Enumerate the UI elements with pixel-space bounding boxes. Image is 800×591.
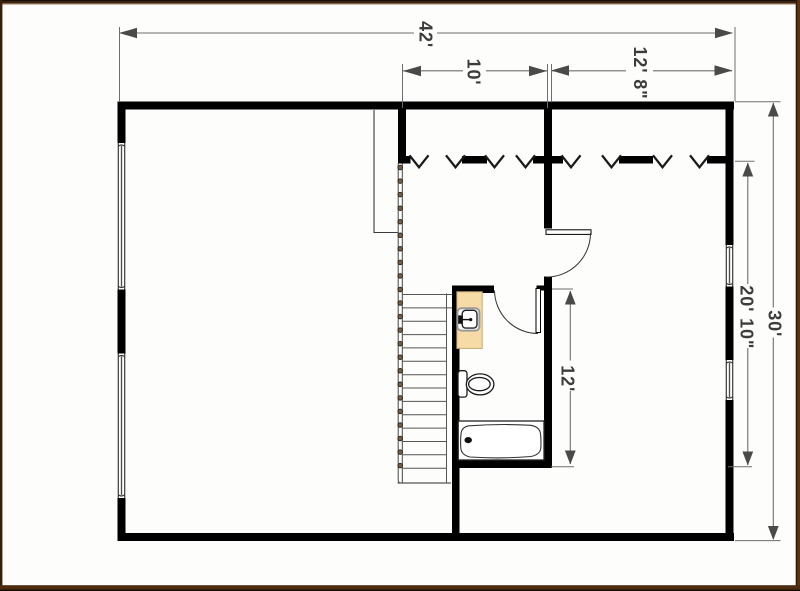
svg-text:30': 30' [765, 310, 785, 337]
svg-text:12': 12' [558, 365, 578, 392]
svg-text:42': 42' [416, 21, 436, 48]
svg-text:12' 8": 12' 8" [630, 47, 650, 100]
svg-text:20' 10": 20' 10" [737, 285, 757, 349]
svg-text:10': 10' [464, 59, 484, 86]
